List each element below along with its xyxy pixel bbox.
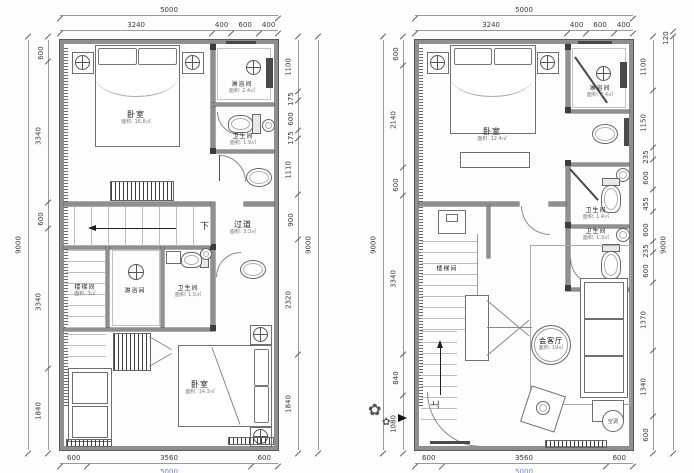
planB-dim-left-overall: 9000 — [371, 40, 383, 450]
dim-segment: 2320 — [286, 243, 299, 359]
planA-column — [210, 325, 216, 331]
dim-segment: 600 — [231, 19, 259, 31]
dim-value: 600 — [393, 178, 400, 191]
dim-value: 3560 — [160, 455, 178, 462]
dim-value: 400 — [215, 22, 228, 29]
dim-segment: 235 — [641, 151, 654, 163]
planB-top-window — [578, 41, 612, 44]
planA-column — [210, 44, 216, 50]
dim-value: 3560 — [515, 455, 533, 462]
planA-toilet1-sink — [262, 119, 275, 132]
dim-segment: 1370 — [641, 286, 654, 354]
dim-value: 600 — [38, 46, 45, 59]
planA-dim-left: 600334060033401840 — [36, 40, 48, 450]
planB-wall — [566, 110, 629, 113]
planB-dim-right: 1100115023560045560023560013701340600 — [641, 40, 653, 450]
dim-segment: 400 — [259, 19, 278, 31]
dim-segment: 5000 — [60, 4, 278, 16]
up-arrow-icon — [437, 340, 443, 348]
dim-segment: 3560 — [442, 452, 605, 464]
planA-dim-right: 1100175600175111090023201840 — [286, 40, 298, 450]
dim-value: 1100 — [286, 59, 293, 77]
dim-segment: 5000 — [60, 466, 278, 473]
planB-column — [565, 160, 571, 166]
dim-segment: 1100 — [286, 40, 299, 95]
planA-dim-right-overall: 9000 — [306, 40, 318, 450]
dim-segment: 1840 — [286, 358, 299, 450]
planA-bed2-pillow — [254, 349, 269, 386]
dim-value: 1840 — [286, 395, 293, 413]
planA-bottom-window-hatch — [228, 437, 274, 445]
planB-dim-bottom-overall: 5000 — [415, 466, 633, 473]
dim-value: 600 — [288, 112, 295, 125]
planA-door-leaf — [219, 155, 220, 181]
dim-value: 9000 — [661, 236, 668, 254]
dim-value: 3340 — [36, 293, 43, 311]
dim-segment: 9000 — [371, 40, 384, 450]
dim-segment: 600 — [251, 452, 278, 464]
dim-segment: 9000 — [306, 40, 319, 450]
planB-dim-bottom: 6003560600 — [415, 452, 633, 463]
dim-segment: 3340 — [36, 65, 49, 206]
planB-shower-shelf — [620, 62, 627, 88]
dim-value: 1080 — [391, 415, 398, 433]
dim-segment: 3340 — [391, 199, 404, 358]
dim-value: 9000 — [16, 236, 23, 254]
dim-segment: 1840 — [36, 372, 49, 450]
ceiling-lamp-icon — [185, 55, 200, 70]
planA-bottom-window-hatch — [66, 439, 112, 447]
dim-value: 600 — [258, 455, 271, 462]
planA-shower1-lining — [217, 48, 271, 100]
planB-bottom-window-hatch — [545, 440, 607, 448]
planA-wall — [211, 44, 215, 152]
wash-basin-icon — [240, 260, 266, 279]
planB-column — [565, 44, 571, 50]
planA-bed1-drape — [95, 56, 178, 97]
dim-segment: 2140 — [391, 69, 404, 171]
dim-value: 3240 — [482, 22, 500, 29]
dim-value: 600 — [67, 455, 80, 462]
dim-value: 1100 — [641, 58, 648, 76]
planA-wall — [106, 246, 109, 328]
dim-segment: 400 — [567, 19, 586, 31]
planA-stairwell-steps — [66, 248, 106, 328]
dim-value: 235 — [643, 244, 650, 257]
planB-sofa-cushion — [584, 319, 624, 356]
entry-arrow-icon — [398, 414, 407, 422]
dim-value: 400 — [570, 22, 583, 29]
room-area: 面积: 19㎡ — [539, 346, 564, 352]
planB-dim-right-overall: 1209000 — [661, 35, 673, 450]
dim-value: 5000 — [160, 469, 178, 473]
planA-down-arrow-line — [96, 228, 176, 229]
wash-basin-icon — [592, 124, 618, 144]
planB-dim-top: 3240400600400 — [415, 19, 633, 30]
dim-value: 600 — [643, 171, 650, 184]
planA-down-label: 下 — [200, 223, 209, 232]
down-arrow-icon — [88, 225, 96, 231]
planA-wall — [161, 246, 164, 328]
planA-wardrobe-door — [72, 372, 108, 404]
dim-segment: 1100 — [641, 40, 654, 94]
planA-dim-bottom: 6003560600 — [60, 452, 278, 463]
planB-bed-bench — [460, 152, 530, 168]
dim-value: 400 — [617, 22, 630, 29]
dim-value: 1370 — [641, 311, 648, 329]
dim-value: 600 — [643, 223, 650, 236]
planB-chair-line — [487, 327, 532, 328]
dim-segment: 235 — [641, 245, 654, 257]
planA-stairwell-steps-lower — [66, 331, 106, 357]
dim-value: 2140 — [391, 111, 398, 129]
dim-value: 1340 — [641, 378, 648, 396]
planB-wall — [549, 202, 566, 206]
entry-plant-icon: ✿ — [382, 418, 390, 428]
planA-wall — [244, 202, 274, 206]
planA-wall — [211, 103, 274, 106]
dim-value: 1110 — [286, 161, 293, 179]
dim-value: 5000 — [515, 7, 533, 14]
dim-value: 600 — [38, 212, 45, 225]
planB-column — [565, 107, 571, 113]
ceiling-lamp-icon — [430, 55, 445, 70]
dim-value: 1840 — [36, 402, 43, 420]
planA-bed2-pillow — [254, 386, 269, 423]
dim-segment: 600 — [641, 420, 654, 450]
planA-toilet1-tank — [252, 114, 261, 134]
planB-sofa-cushion — [584, 282, 624, 319]
dim-segment: 3240 — [415, 19, 567, 31]
dim-value: 400 — [262, 22, 275, 29]
toilet-icon — [601, 185, 621, 213]
planB-up-arrow-line — [440, 347, 441, 395]
dim-value: 3340 — [391, 270, 398, 288]
planA-toilet2-sinkbowl — [200, 248, 212, 260]
planB-bed-drape — [450, 56, 534, 97]
dim-segment: 3560 — [87, 452, 250, 464]
dim-segment: 400 — [212, 19, 231, 31]
toilet-icon — [181, 252, 202, 268]
planB-wall — [487, 206, 490, 258]
dim-value: 3240 — [127, 22, 145, 29]
planA-dim-top: 3240400600400 — [60, 19, 278, 30]
planA-dim-left-overall: 9000 — [16, 40, 28, 450]
dim-segment: 600 — [586, 19, 614, 31]
dim-segment: 840 — [391, 358, 404, 398]
planA-wardrobe-door — [72, 406, 108, 438]
dim-segment: 9000 — [661, 40, 674, 450]
planA-top-window — [226, 41, 256, 44]
planB-sofa-cushion — [584, 356, 624, 393]
dim-segment: 1150 — [641, 94, 654, 151]
planB-dim-top-overall: 5000 — [415, 4, 633, 15]
planA-column — [210, 148, 216, 154]
dim-segment: 5000 — [415, 466, 633, 473]
planB-wall — [566, 44, 570, 112]
planB-heater — [624, 118, 629, 146]
dim-segment: 900 — [286, 198, 299, 243]
planB-living-label-circle: 会客厅 面积: 19㎡ — [531, 325, 571, 365]
dim-segment: 3240 — [60, 19, 212, 31]
ceiling-lamp-icon — [75, 55, 90, 70]
planA-wall — [211, 150, 274, 153]
ceiling-lamp-icon — [253, 327, 268, 342]
dim-segment: 600 — [415, 452, 442, 464]
dim-segment: 1340 — [641, 354, 654, 420]
dim-value: 5000 — [515, 469, 533, 473]
dim-value: 840 — [393, 372, 400, 385]
dim-value: 455 — [643, 197, 650, 210]
dim-value: 1150 — [641, 114, 648, 132]
dim-value: 600 — [613, 455, 626, 462]
shower-head-icon — [246, 60, 261, 75]
dim-value: 2320 — [286, 291, 293, 309]
dim-segment: 1080 — [391, 399, 404, 450]
dim-value: 600 — [238, 22, 251, 29]
ac-label: 空调 — [608, 418, 618, 425]
dim-value: 600 — [393, 48, 400, 61]
dim-segment: 9000 — [16, 40, 29, 450]
floorplan-drawing: 5000 3240400600400 9000 6003340600334018… — [0, 0, 694, 473]
planA-wall — [64, 202, 214, 206]
dim-value: 600 — [643, 428, 650, 441]
planB-dim-left: 600214060033408401080 — [391, 40, 403, 450]
dim-segment: 400 — [614, 19, 633, 31]
planA-shower1-shelf — [266, 58, 273, 88]
planA-shower2-lining — [112, 250, 160, 326]
dim-value: 9000 — [306, 236, 313, 254]
planB-wall — [419, 202, 519, 206]
planB-column — [565, 222, 571, 228]
planA-stair-railing — [110, 181, 174, 201]
dim-segment: 600 — [606, 452, 633, 464]
dim-value: 9000 — [371, 236, 378, 254]
ac-unit-icon: 空调 — [602, 410, 624, 432]
planA-winder-stairs — [113, 333, 151, 371]
dim-segment: 1110 — [286, 142, 299, 197]
dim-value: 3340 — [36, 127, 43, 145]
planB-toilet2-sink — [616, 228, 630, 242]
planB-drafting-table — [465, 295, 489, 361]
planB-washbasin-faucet — [446, 214, 458, 222]
planA-toilet2-sink-counter — [166, 251, 181, 264]
dim-value: 600 — [593, 22, 606, 29]
shower-head-icon — [596, 66, 611, 81]
dim-value: 600 — [422, 455, 435, 462]
planA-dim-top-overall: 5000 — [60, 4, 278, 15]
dim-value: 600 — [643, 265, 650, 278]
planB-stool-cup — [536, 401, 550, 415]
shower-head-icon — [128, 264, 144, 280]
dim-value: 900 — [288, 213, 295, 226]
ceiling-lamp-icon — [540, 55, 555, 70]
planB-wall — [566, 163, 629, 166]
dim-segment: 3340 — [36, 232, 49, 373]
dim-segment: 5000 — [415, 4, 633, 16]
planB-entry-door-leaf — [430, 441, 470, 444]
wash-basin-icon — [246, 168, 272, 187]
dim-segment: 600 — [60, 452, 87, 464]
entry-plant-icon: ✿ — [368, 402, 381, 418]
dim-value: 5000 — [160, 7, 178, 14]
planA-dim-bottom-overall: 5000 — [60, 466, 278, 473]
